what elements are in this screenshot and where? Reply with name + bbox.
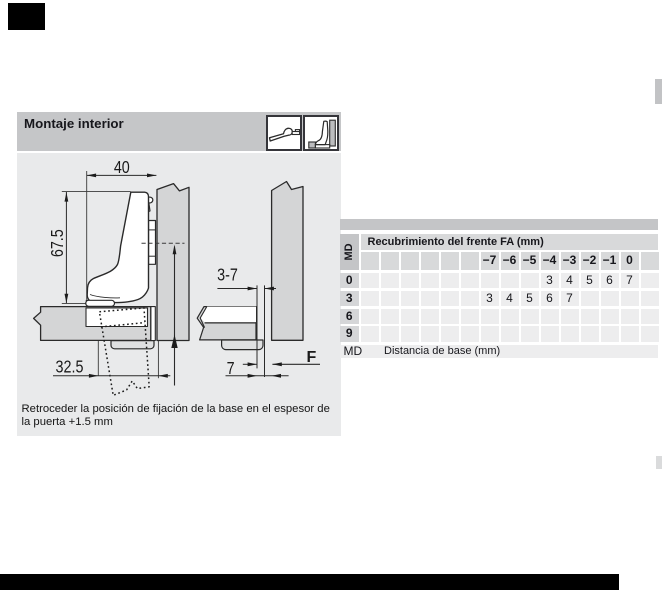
- svg-text:32.5: 32.5: [56, 358, 84, 377]
- svg-text:40: 40: [114, 159, 130, 178]
- svg-text:7: 7: [227, 360, 235, 379]
- svg-text:F: F: [307, 349, 317, 366]
- svg-text:3-7: 3-7: [217, 266, 238, 285]
- svg-text:67.5: 67.5: [49, 229, 68, 257]
